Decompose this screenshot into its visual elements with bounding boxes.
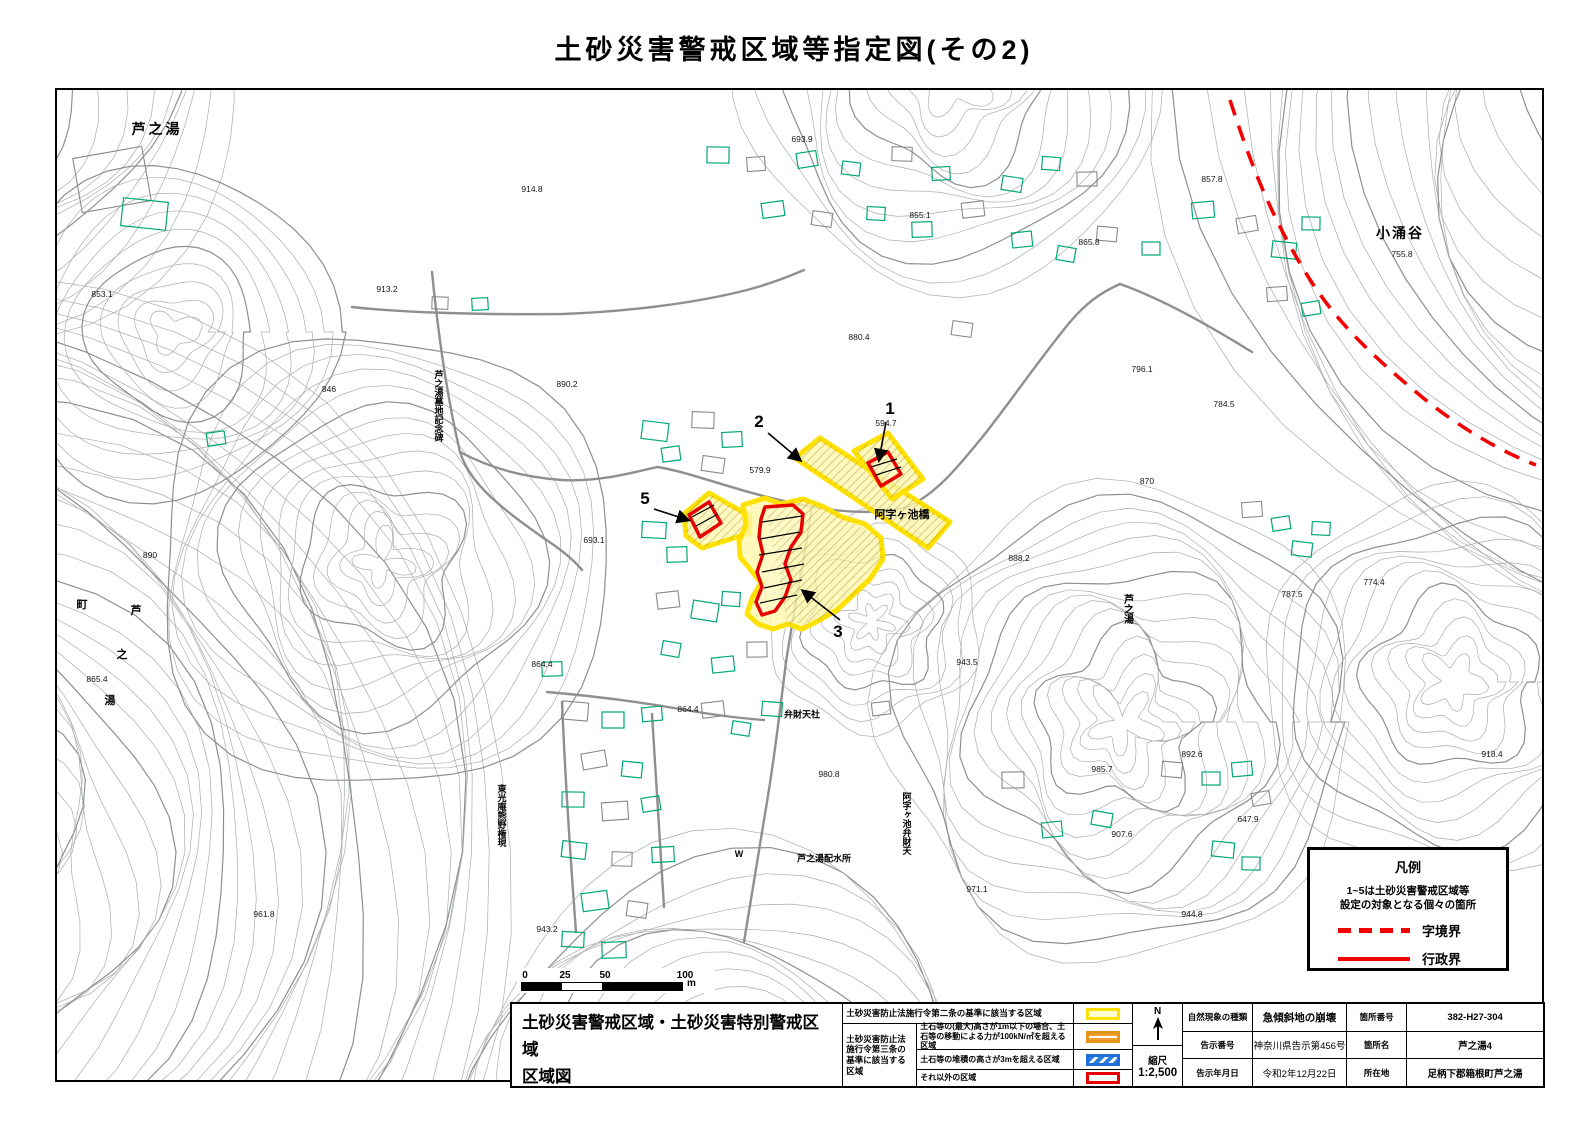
map-frame: 芦之湯小涌谷町芦之湯芦之湯芦之湯墓地記念碑東光庵熊野権現阿字ヶ池弁財天弁財天社芦… [55,88,1544,1082]
scale-bar-graphic [521,982,683,991]
legend-dashed-row: 字境界 [1338,921,1506,940]
legend-row-article2: 土砂災害防止法施行令第二条の基準に該当する区域 [843,1004,1132,1024]
yellow-zone-swatch [1086,1008,1120,1020]
red-zone-swatch [1086,1072,1120,1084]
north-scale-column: N 縮尺 1:2,500 [1133,1004,1183,1086]
scale-unit: m [687,978,696,989]
sheet-title-line2: 区域図 [522,1064,832,1091]
page: 土砂災害警戒区域等指定図(その2) [0,0,1588,1123]
attr-row-location: 所在地 足柄下郡箱根町芦之湯 [1347,1059,1543,1086]
north-cell: N [1133,1004,1182,1046]
legend-row-orange: 土石等の(最大)高さが1m以下の場合、土石等の移動による力が100kN/㎡を超え… [917,1024,1132,1050]
orange-zone-swatch [1086,1031,1120,1043]
legend-note: 1~5は土砂災害警戒区域等 設定の対象となる個々の箇所 [1310,885,1506,912]
scale-cell: 縮尺 1:2,500 [1133,1046,1182,1086]
attr-row-phenomenon: 自然現象の種類 急傾斜地の崩壊 [1183,1004,1346,1032]
solid-line-sample [1338,957,1410,961]
attr-row-site-number: 箇所番号 382-H27-304 [1347,1004,1543,1032]
zone-legend-table: 土砂災害防止法施行令第二条の基準に該当する区域 土砂災害防止法施行令第三条の基準… [843,1004,1133,1086]
north-label: N [1154,1007,1161,1017]
buildings [73,146,1331,958]
dashed-line-label: 字境界 [1422,921,1461,940]
attribute-table: 土砂災害警戒区域・土砂災害特別警戒区域 区域図 土砂災害防止法施行令第二条の基準… [510,1002,1545,1088]
sheet-title-line1: 土砂災害警戒区域・土砂災害特別警戒区域 [522,1010,832,1064]
attr-row-notice-number: 告示番号 神奈川県告示第456号 [1183,1032,1346,1060]
scale-tick-25: 25 [559,970,570,981]
scale-value: 1:2,500 [1138,1067,1177,1079]
notice-attributes-column: 自然現象の種類 急傾斜地の崩壊 告示番号 神奈川県告示第456号 告示年月日 令… [1183,1004,1347,1086]
scale-bar: 0 25 50 100 m [517,968,715,993]
scale-label: 縮尺 [1148,1053,1167,1067]
attr-row-site-name: 箇所名 芦之湯4 [1347,1032,1543,1060]
legend-row-blue: 土石等の堆積の高さが3mを超える区域 [917,1050,1132,1070]
scale-tick-50: 50 [599,970,610,981]
page-title: 土砂災害警戒区域等指定図(その2) [0,28,1588,67]
legend-solid-row: 行政界 [1338,949,1506,968]
legend-law3-label: 土砂災害防止法施行令第三条の基準に該当する区域 [843,1024,917,1086]
solid-line-label: 行政界 [1422,949,1461,968]
north-arrow-icon [1151,1017,1165,1041]
scale-tick-0: 0 [522,970,528,981]
blue-zone-swatch [1086,1054,1120,1066]
legend-box: 凡例 1~5は土砂災害警戒区域等 設定の対象となる個々の箇所 字境界 行政界 [1307,847,1509,971]
scale-ticks: 0 25 50 100 [521,970,711,982]
attr-row-notice-date: 告示年月日 令和2年12月22日 [1183,1059,1346,1086]
district-boundary-line [1230,100,1536,465]
legend-row-red: それ以外の区域 [917,1070,1132,1086]
site-attributes-column: 箇所番号 382-H27-304 箇所名 芦之湯4 所在地 足柄下郡箱根町芦之湯 [1347,1004,1543,1086]
map-sheet-title-cell: 土砂災害警戒区域・土砂災害特別警戒区域 区域図 [512,1004,843,1086]
dashed-line-sample [1338,928,1410,933]
legend-title: 凡例 [1310,857,1506,876]
